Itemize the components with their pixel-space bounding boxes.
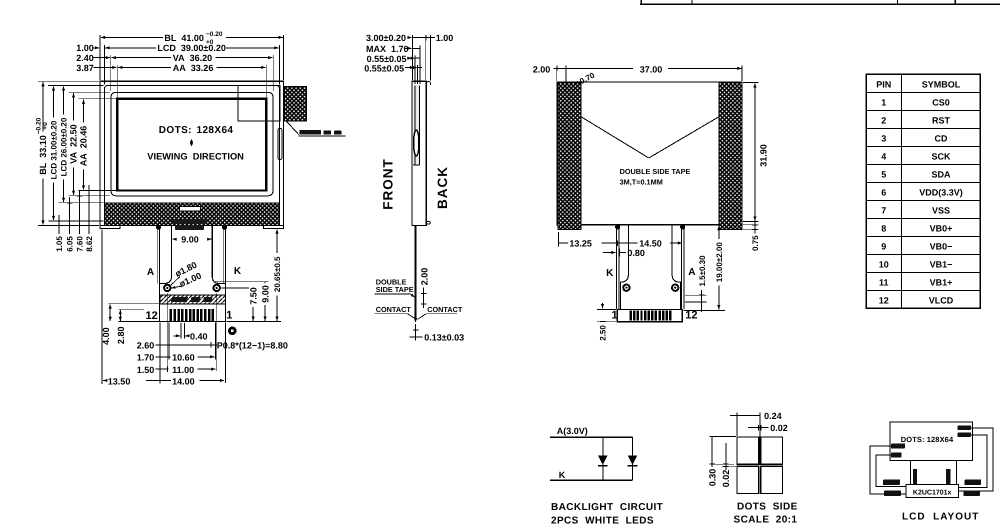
svg-text:VDD(3.3V): VDD(3.3V)	[919, 187, 963, 197]
svg-text:0.40: 0.40	[190, 332, 208, 342]
svg-text:7: 7	[881, 205, 886, 215]
svg-text:PIN: PIN	[876, 79, 891, 89]
svg-text:K2UC1701x: K2UC1701x	[913, 490, 952, 497]
svg-text:2.80: 2.80	[116, 327, 126, 345]
svg-text:SYMBOL: SYMBOL	[922, 79, 961, 89]
svg-text:0.55±0.05: 0.55±0.05	[364, 64, 404, 74]
svg-text:−0.20: −0.20	[206, 31, 223, 38]
svg-text:20.65±0.5: 20.65±0.5	[273, 256, 282, 292]
svg-text:BACKLIGHT CIRCUIT: BACKLIGHT CIRCUIT	[551, 502, 663, 513]
svg-text:9.00: 9.00	[260, 285, 270, 303]
svg-text:VLCD: VLCD	[929, 295, 954, 305]
svg-text:0.30: 0.30	[707, 469, 717, 487]
svg-text:SCK: SCK	[931, 151, 951, 161]
svg-text:2.60: 2.60	[137, 341, 155, 351]
svg-text:31.90: 31.90	[759, 144, 769, 167]
svg-text:0.02: 0.02	[721, 470, 731, 488]
svg-text:9.00: 9.00	[181, 235, 199, 245]
svg-text:0.02: 0.02	[770, 423, 788, 433]
svg-text:1.00: 1.00	[436, 33, 454, 43]
svg-text:VB1−: VB1−	[930, 259, 953, 269]
svg-text:SCALE 20:1: SCALE 20:1	[734, 514, 798, 525]
svg-text:CS0: CS0	[932, 97, 950, 107]
svg-text:1.05: 1.05	[55, 236, 64, 252]
svg-text:2.00: 2.00	[533, 64, 551, 74]
svg-text:BACK: BACK	[435, 166, 450, 209]
svg-text:8: 8	[881, 223, 886, 233]
svg-text:DOTS: 128X64: DOTS: 128X64	[901, 435, 954, 444]
svg-text:2.40: 2.40	[76, 53, 94, 63]
svg-text:AA 33.26: AA 33.26	[173, 63, 214, 73]
svg-text:K: K	[606, 268, 614, 279]
svg-text:13.25: 13.25	[569, 239, 592, 249]
svg-text:5: 5	[881, 169, 886, 179]
svg-text:2: 2	[881, 115, 886, 125]
svg-text:K: K	[234, 266, 242, 277]
svg-text:13.50: 13.50	[108, 376, 131, 386]
svg-text:CONTACT: CONTACT	[427, 305, 463, 314]
svg-text:VIEWING DIRECTION: VIEWING DIRECTION	[147, 151, 244, 161]
svg-text:128X64: 128X64	[197, 125, 234, 136]
svg-text:0.55±0.05: 0.55±0.05	[367, 54, 407, 64]
svg-text:VB0−: VB0−	[930, 241, 953, 251]
svg-text:11.00: 11.00	[172, 365, 194, 375]
svg-text:RST: RST	[932, 115, 951, 125]
svg-text:10: 10	[879, 259, 889, 269]
svg-text:3: 3	[881, 133, 886, 143]
svg-text:VA 36.20: VA 36.20	[173, 53, 212, 63]
svg-text:LCD 31.00±0.20: LCD 31.00±0.20	[50, 120, 59, 179]
svg-text:VSS: VSS	[932, 205, 950, 215]
svg-text:1.5±0.30: 1.5±0.30	[698, 255, 707, 287]
svg-text:DOTS SIDE: DOTS SIDE	[737, 502, 798, 513]
svg-text:BL 33.10: BL 33.10	[38, 135, 48, 175]
svg-text:37.00: 37.00	[640, 64, 663, 74]
svg-text:P0.8*(12−1)=8.80: P0.8*(12−1)=8.80	[217, 341, 288, 351]
svg-text:6: 6	[881, 187, 886, 197]
svg-text:1: 1	[881, 97, 886, 107]
svg-text:2.00: 2.00	[419, 268, 429, 286]
svg-text:LCD 26.00±0.20: LCD 26.00±0.20	[60, 117, 69, 176]
svg-text:0.13±0.03: 0.13±0.03	[424, 332, 464, 342]
svg-text:0.24: 0.24	[764, 411, 782, 421]
svg-text:1.70: 1.70	[137, 353, 155, 363]
svg-text:+0: +0	[42, 122, 49, 130]
svg-text:14.00: 14.00	[172, 376, 195, 386]
svg-text:A: A	[688, 267, 695, 278]
svg-text:CONTACT: CONTACT	[376, 305, 412, 314]
svg-text:14.50: 14.50	[639, 239, 662, 249]
svg-text:3.87: 3.87	[76, 63, 94, 73]
svg-text:VB1+: VB1+	[930, 277, 953, 287]
svg-text:0.75: 0.75	[751, 235, 760, 251]
svg-text:VA 22.50: VA 22.50	[69, 124, 79, 163]
svg-text:AA 20.46: AA 20.46	[79, 126, 89, 167]
svg-text:4: 4	[881, 151, 886, 161]
svg-text:10.60: 10.60	[172, 353, 195, 363]
svg-text:SDA: SDA	[931, 169, 951, 179]
svg-text:0.80: 0.80	[627, 248, 645, 258]
svg-text:8.62: 8.62	[85, 236, 94, 252]
svg-text:12: 12	[146, 310, 158, 322]
svg-text:7.50: 7.50	[248, 287, 258, 305]
svg-text:12: 12	[685, 310, 697, 322]
svg-text:DOUBLE SIDE TAPE: DOUBLE SIDE TAPE	[620, 167, 691, 176]
svg-text:SIDE TAPE: SIDE TAPE	[376, 285, 414, 294]
svg-text:1: 1	[226, 309, 232, 321]
svg-text:MAX 1.70: MAX 1.70	[366, 44, 409, 54]
svg-text:3M,T=0.1MM: 3M,T=0.1MM	[620, 178, 663, 187]
svg-text:11: 11	[879, 277, 889, 287]
svg-text:1.50: 1.50	[137, 365, 155, 375]
svg-text:A(3.0V): A(3.0V)	[557, 426, 588, 436]
svg-text:1: 1	[612, 310, 618, 322]
svg-text:19.00±2.00: 19.00±2.00	[715, 242, 724, 283]
svg-text:2.50: 2.50	[599, 325, 608, 341]
svg-text:CD: CD	[935, 133, 948, 143]
svg-text:12: 12	[879, 295, 889, 305]
svg-text:FRONT: FRONT	[381, 158, 396, 210]
svg-text:BL 41.00: BL 41.00	[164, 33, 204, 43]
svg-text:6.05: 6.05	[66, 236, 75, 252]
svg-text:9: 9	[881, 241, 886, 251]
svg-text:2PCS WHITE LEDS: 2PCS WHITE LEDS	[551, 516, 654, 527]
svg-text:7.60: 7.60	[76, 236, 85, 252]
svg-text:3.00±0.20: 3.00±0.20	[366, 33, 406, 43]
svg-text:VB0+: VB0+	[930, 223, 953, 233]
svg-text:DOTS:: DOTS:	[159, 125, 192, 136]
svg-text:LCD LAYOUT: LCD LAYOUT	[902, 512, 979, 523]
svg-text:A: A	[147, 267, 154, 278]
svg-text:LCD 39.00±0.20: LCD 39.00±0.20	[157, 43, 225, 53]
svg-text:1.00: 1.00	[76, 43, 94, 53]
svg-text:4.00: 4.00	[101, 327, 111, 345]
svg-text:K: K	[559, 470, 566, 480]
